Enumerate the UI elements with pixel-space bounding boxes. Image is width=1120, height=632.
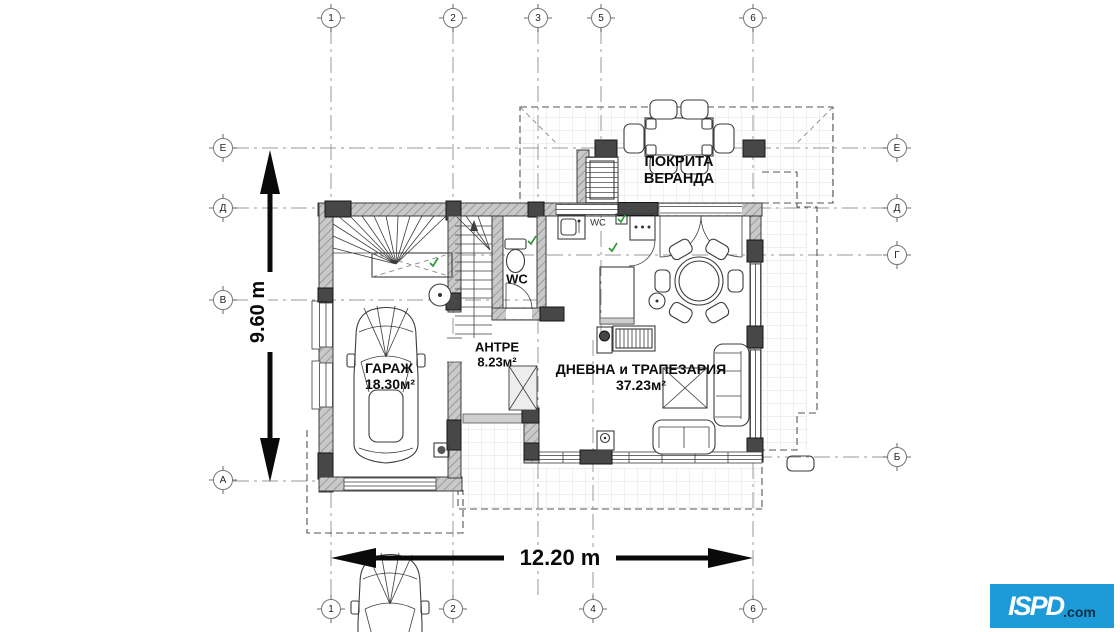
ispd-logo: ISPD.com <box>990 584 1114 628</box>
grid-bubble-top-2: 2 <box>443 8 463 28</box>
sofa-small-icon <box>653 420 715 454</box>
grid-bubble-left-v: В <box>213 290 233 310</box>
garage-stairs-icon <box>333 216 452 277</box>
grid-bubble-top-1: 1 <box>321 8 341 28</box>
grid-bubble-bottom-6: 6 <box>743 599 763 619</box>
room-label-wc: WC <box>506 273 528 286</box>
logo-brand-text: ISPD <box>1008 591 1063 622</box>
dining-table-icon <box>655 237 743 324</box>
dimension-label-horizontal: 12.20 m <box>514 547 607 569</box>
room-area-antre: 8.23м² <box>477 356 516 369</box>
sofa-large-icon <box>714 344 749 426</box>
grid-bubble-top-6: 6 <box>743 8 763 28</box>
grid-bubble-left-d: Д <box>213 198 233 218</box>
cabinet-icon <box>600 267 634 324</box>
grid-bubble-right-e: Е <box>887 138 907 158</box>
grid-bubble-left-a: А <box>213 470 233 490</box>
grid-bubble-bottom-2: 2 <box>443 599 463 619</box>
logo-suffix-text: .com <box>1063 604 1096 620</box>
room-label-antre: АНТРЕ <box>475 341 519 354</box>
terrace-chair-icon <box>787 456 814 471</box>
room-label-veranda-line1: ПОКРИТА <box>644 155 713 170</box>
dimension-label-vertical: 9.60 m <box>248 275 268 349</box>
floor-plan-linework <box>0 0 1120 632</box>
room-label-living: ДНЕВНА и ТРАПЕЗАРИЯ <box>556 362 726 376</box>
grid-bubble-top-3: 3 <box>528 8 548 28</box>
room-area-garage: 18.30м² <box>365 377 415 391</box>
grid-bubble-bottom-1: 1 <box>321 599 341 619</box>
stove-icon <box>629 214 655 266</box>
grid-bubble-top-5: 5 <box>591 8 611 28</box>
room-label-veranda-line2: ВЕРАНДА <box>644 172 714 187</box>
floor-plan-canvas: 1 2 3 5 6 1 2 4 6 Е Д В А Е Д Г Б ПОКРИТ… <box>0 0 1120 632</box>
grid-bubble-left-e: Е <box>213 138 233 158</box>
fireplace-icon <box>597 326 655 353</box>
toilet-icon <box>505 239 526 273</box>
room-area-living: 37.23м² <box>616 378 666 392</box>
grid-bubble-bottom-4: 4 <box>583 599 603 619</box>
kitchen-fixtures <box>558 214 665 309</box>
kitchen-sink-icon <box>558 215 585 239</box>
grid-bubble-right-d: Д <box>887 198 907 218</box>
kitchen-note-label: WC <box>590 218 606 228</box>
bbq-icon <box>586 157 618 203</box>
room-label-garage: ГАРАЖ <box>365 361 413 375</box>
grid-bubble-right-b: Б <box>887 447 907 467</box>
grid-bubble-right-g: Г <box>887 245 907 265</box>
